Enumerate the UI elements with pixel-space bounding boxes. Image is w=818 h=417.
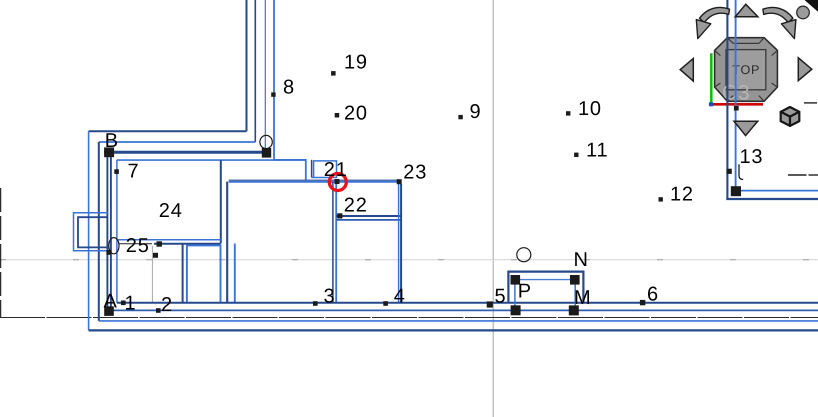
svg-text:19: 19 — [344, 52, 368, 74]
svg-text:3: 3 — [324, 286, 336, 308]
svg-text:5: 5 — [495, 285, 507, 307]
svg-text:N: N — [574, 249, 589, 271]
svg-text:12: 12 — [670, 184, 694, 206]
svg-text:6: 6 — [647, 283, 659, 305]
svg-text:A: A — [104, 291, 118, 313]
svg-text:1: 1 — [125, 292, 137, 314]
svg-text:P: P — [518, 281, 532, 303]
svg-text:10: 10 — [578, 98, 602, 120]
svg-text:B: B — [105, 130, 119, 152]
svg-text:22: 22 — [344, 194, 368, 216]
svg-text:23: 23 — [403, 161, 427, 183]
svg-text:20: 20 — [344, 102, 368, 124]
svg-text:9: 9 — [470, 101, 482, 123]
svg-text:11: 11 — [586, 140, 608, 162]
svg-text:25: 25 — [126, 235, 150, 257]
svg-text:8: 8 — [283, 76, 295, 98]
svg-text:7: 7 — [128, 160, 140, 182]
svg-text:13: 13 — [740, 146, 764, 168]
svg-text:24: 24 — [159, 200, 183, 222]
svg-text:21: 21 — [324, 159, 348, 181]
svg-text:2: 2 — [161, 294, 173, 316]
svg-text:4: 4 — [394, 286, 406, 308]
